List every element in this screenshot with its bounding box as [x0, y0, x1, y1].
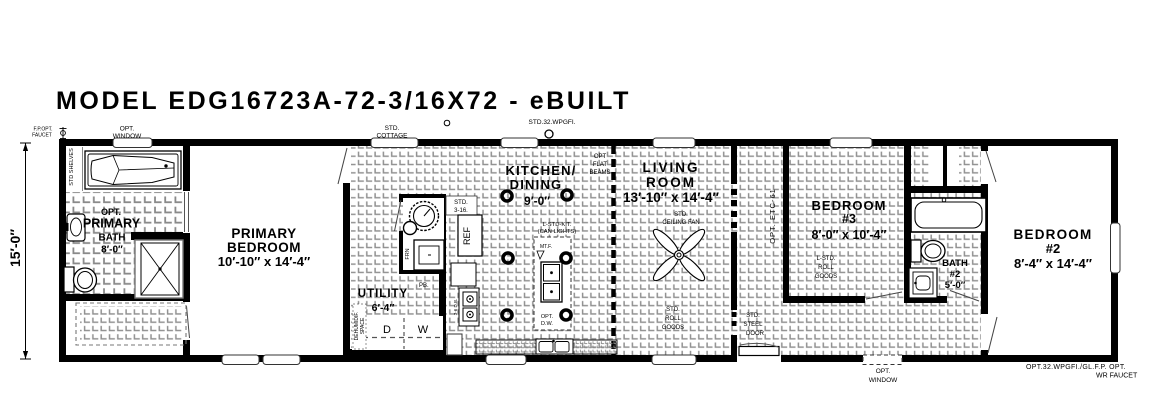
svg-text:PRIMARY: PRIMARY	[231, 226, 296, 241]
svg-text:8′-4″ x 14′-4″: 8′-4″ x 14′-4″	[1014, 256, 1092, 271]
svg-text:STD.: STD.	[666, 307, 680, 313]
svg-text:UTILITY: UTILITY	[358, 288, 408, 300]
svg-text:STD.: STD.	[746, 313, 760, 319]
svg-text:BATH: BATH	[942, 258, 968, 269]
svg-text:L-STD.: L-STD.	[816, 256, 835, 262]
svg-text:GOODS: GOODS	[662, 325, 684, 331]
svg-text:CEILING FAN: CEILING FAN	[662, 220, 699, 226]
svg-text:REF: REF	[462, 226, 472, 245]
svg-text:OPT.: OPT.	[101, 207, 121, 217]
svg-text:PB.: PB.	[419, 283, 429, 289]
svg-text:MODEL EDG16723A-72-3/16X72 - e: MODEL EDG16723A-72-3/16X72 - eBUILT	[56, 87, 631, 115]
svg-text:3-16.: 3-16.	[454, 208, 468, 214]
svg-text:ROLL: ROLL	[665, 316, 681, 322]
svg-text:OPT. ETC-61: OPT. ETC-61	[768, 188, 777, 244]
svg-text:15′-0″: 15′-0″	[7, 229, 23, 267]
svg-text:STD.: STD.	[385, 125, 400, 132]
svg-text:8′-0″: 8′-0″	[101, 245, 123, 256]
svg-text:13′-10″ x 14′-4″: 13′-10″ x 14′-4″	[623, 190, 719, 205]
svg-text:DINING: DINING	[510, 177, 563, 192]
svg-text:D.W.: D.W.	[541, 321, 553, 327]
svg-text:L-STD-KIT.: L-STD-KIT.	[543, 222, 572, 228]
svg-text:STD.32.WPGFI.: STD.32.WPGFI.	[529, 119, 576, 126]
svg-text:OPT.: OPT.	[541, 314, 554, 320]
svg-text:WINDOW: WINDOW	[869, 377, 898, 384]
svg-text:OPT.: OPT.	[876, 368, 891, 375]
svg-text:W: W	[418, 324, 429, 336]
svg-text:BEDROOM: BEDROOM	[812, 198, 887, 213]
svg-text:DOOR: DOOR	[746, 331, 765, 337]
svg-text:WINDOW: WINDOW	[113, 133, 142, 140]
svg-text:3-6 D.B.: 3-6 D.B.	[453, 299, 458, 316]
svg-text:FRN: FRN	[405, 248, 411, 259]
svg-text:#3: #3	[842, 212, 856, 226]
svg-text:5′-0″: 5′-0″	[945, 280, 966, 291]
svg-text:STD SHELVES: STD SHELVES	[69, 148, 75, 186]
svg-text:10′-10″ x 14′-4″: 10′-10″ x 14′-4″	[218, 254, 310, 269]
svg-text:6′-4″: 6′-4″	[372, 302, 395, 314]
svg-text:ROOM: ROOM	[646, 175, 696, 190]
svg-text:BEDROOM: BEDROOM	[227, 240, 301, 255]
svg-text:PRIMARY: PRIMARY	[83, 217, 141, 231]
svg-text:BATH: BATH	[98, 233, 125, 244]
svg-text:COTTAGE: COTTAGE	[377, 133, 409, 140]
svg-text:OPT.: OPT.	[120, 126, 135, 133]
svg-text:OPT: OPT	[594, 154, 607, 160]
svg-text:SPACE: SPACE	[360, 317, 366, 334]
svg-text:8′-0″ x 10′-4″: 8′-0″ x 10′-4″	[812, 228, 887, 242]
svg-text:FLAT: FLAT	[593, 162, 608, 168]
svg-text:WR FAUCET: WR FAUCET	[1096, 373, 1138, 380]
svg-text:STD.: STD.	[454, 200, 468, 206]
svg-text:ROLL: ROLL	[818, 265, 834, 271]
svg-text:STEEL: STEEL	[743, 322, 763, 328]
svg-text:BEDROOM: BEDROOM	[1014, 227, 1093, 242]
svg-text:STD.: STD.	[674, 212, 688, 218]
svg-text:GOODS: GOODS	[815, 274, 837, 280]
svg-text:OPT.32.WPGFI./GL.F.P. OPT.: OPT.32.WPGFI./GL.F.P. OPT.	[1026, 364, 1126, 371]
svg-text:(CAN LIGHTS): (CAN LIGHTS)	[538, 229, 577, 235]
svg-text:BEAMS: BEAMS	[589, 170, 610, 176]
svg-text:KITCHEN/: KITCHEN/	[506, 163, 577, 178]
svg-text:MT.F.: MT.F.	[540, 244, 552, 250]
svg-text:LIVING: LIVING	[642, 160, 699, 175]
svg-text:D: D	[383, 324, 391, 336]
svg-text:#2: #2	[950, 269, 961, 280]
svg-text:FAUCET: FAUCET	[32, 133, 52, 139]
svg-text:#2: #2	[1046, 241, 1060, 256]
svg-text:9′-0″: 9′-0″	[524, 194, 550, 208]
